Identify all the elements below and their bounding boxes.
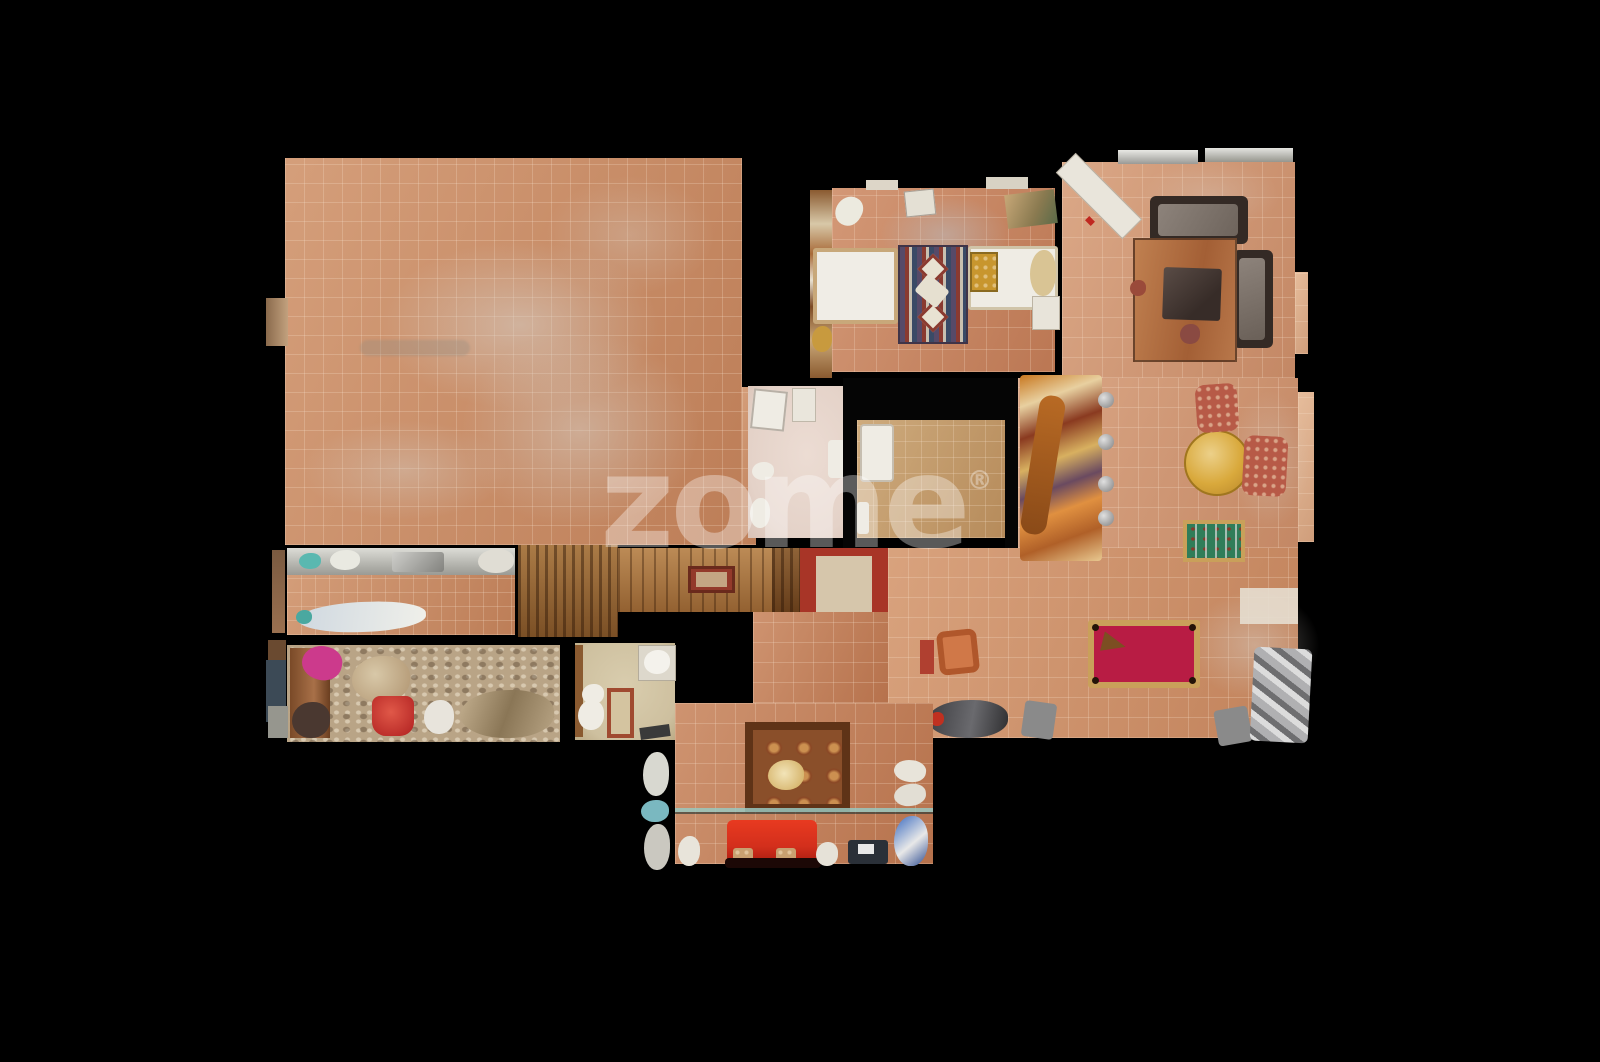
floor-worn-patch [300,420,510,520]
coffee-table [1162,267,1222,321]
pool-pocket [1189,624,1196,631]
terrace-door-gap [266,298,288,346]
gray-cube-seat [1213,705,1253,746]
decor-vase [1180,324,1200,344]
pool-pocket [1092,624,1099,631]
glass-railing-shadow [675,812,933,814]
sofa-top-cushions [1158,204,1238,236]
side-table-paper [858,844,874,854]
inner-room-wall-right [1005,378,1018,548]
bathroom-cabinet [792,388,816,422]
bathroom2-rug [607,688,634,738]
bottomroom-entry-floor [753,612,888,703]
balcony-fragment [644,824,670,870]
storage-dark-chair [292,702,330,738]
blue-item [894,816,928,866]
pool-pocket [1092,677,1099,684]
couch-shadow [725,858,821,868]
shower-tray [750,388,788,431]
red-fragment [920,640,934,674]
storage-left-fragment [268,706,288,738]
storage-clutter [460,690,554,738]
bar-stool [1098,392,1114,408]
bed-left [813,248,898,324]
foosball-table [1183,520,1245,562]
white-chair [816,842,838,866]
floral-armchair [1241,435,1288,497]
washbasin [644,650,670,674]
bed-right-pillow [1030,250,1056,296]
pool-table [1088,620,1200,688]
living-right-notch [1295,272,1308,354]
round-yellow-table [1184,430,1250,496]
bar-stool [1098,434,1114,450]
kitchen-left-strip [272,550,285,633]
storage-white-bucket [424,700,454,734]
registered-trademark-symbol: ® [967,466,993,496]
inner-room-wall-top [843,378,1018,420]
orange-armchair [936,628,980,676]
kitchen-item-white [330,550,360,570]
floor-worn-patch [545,175,715,295]
decor-vase [1130,280,1146,296]
zome-watermark-text: zome [600,429,967,578]
balcony-fragment [641,800,669,822]
nightstand [1032,296,1060,330]
bar-stool [1098,510,1114,526]
rug-center-dog [768,760,804,790]
bedroom-corner-cabinet [1004,189,1058,229]
bedroom-desk [904,189,937,218]
wall-shelf [1205,148,1293,162]
gray-cube-seat [1021,700,1058,740]
kitchen-item-teal [296,610,312,624]
pool-pocket [1189,677,1196,684]
kitchen-item-white [478,549,514,573]
balcony-fragment [643,752,669,796]
zome-watermark: zome® [600,440,993,568]
kitchen-item-teal [299,553,321,569]
floorplan-scene: zome® [0,0,1600,1062]
wardrobe-top-white [866,180,898,190]
floral-armchair [1194,383,1239,434]
toilet [578,700,604,730]
bar-stool [1098,476,1114,492]
wardrobe-top-white [986,177,1028,189]
chrome-furniture [1250,647,1313,744]
wall-shelf [1118,150,1198,164]
white-floor-mat [1240,588,1298,624]
sofa-right-cushions [1239,258,1265,340]
terrace-scuff-marks [360,340,470,356]
kitchen-sink [392,552,444,572]
white-chair [678,836,700,866]
bed-right-quilt [970,252,998,292]
bedroom-gold-item [812,326,832,352]
storage-red-bucket [372,696,414,736]
